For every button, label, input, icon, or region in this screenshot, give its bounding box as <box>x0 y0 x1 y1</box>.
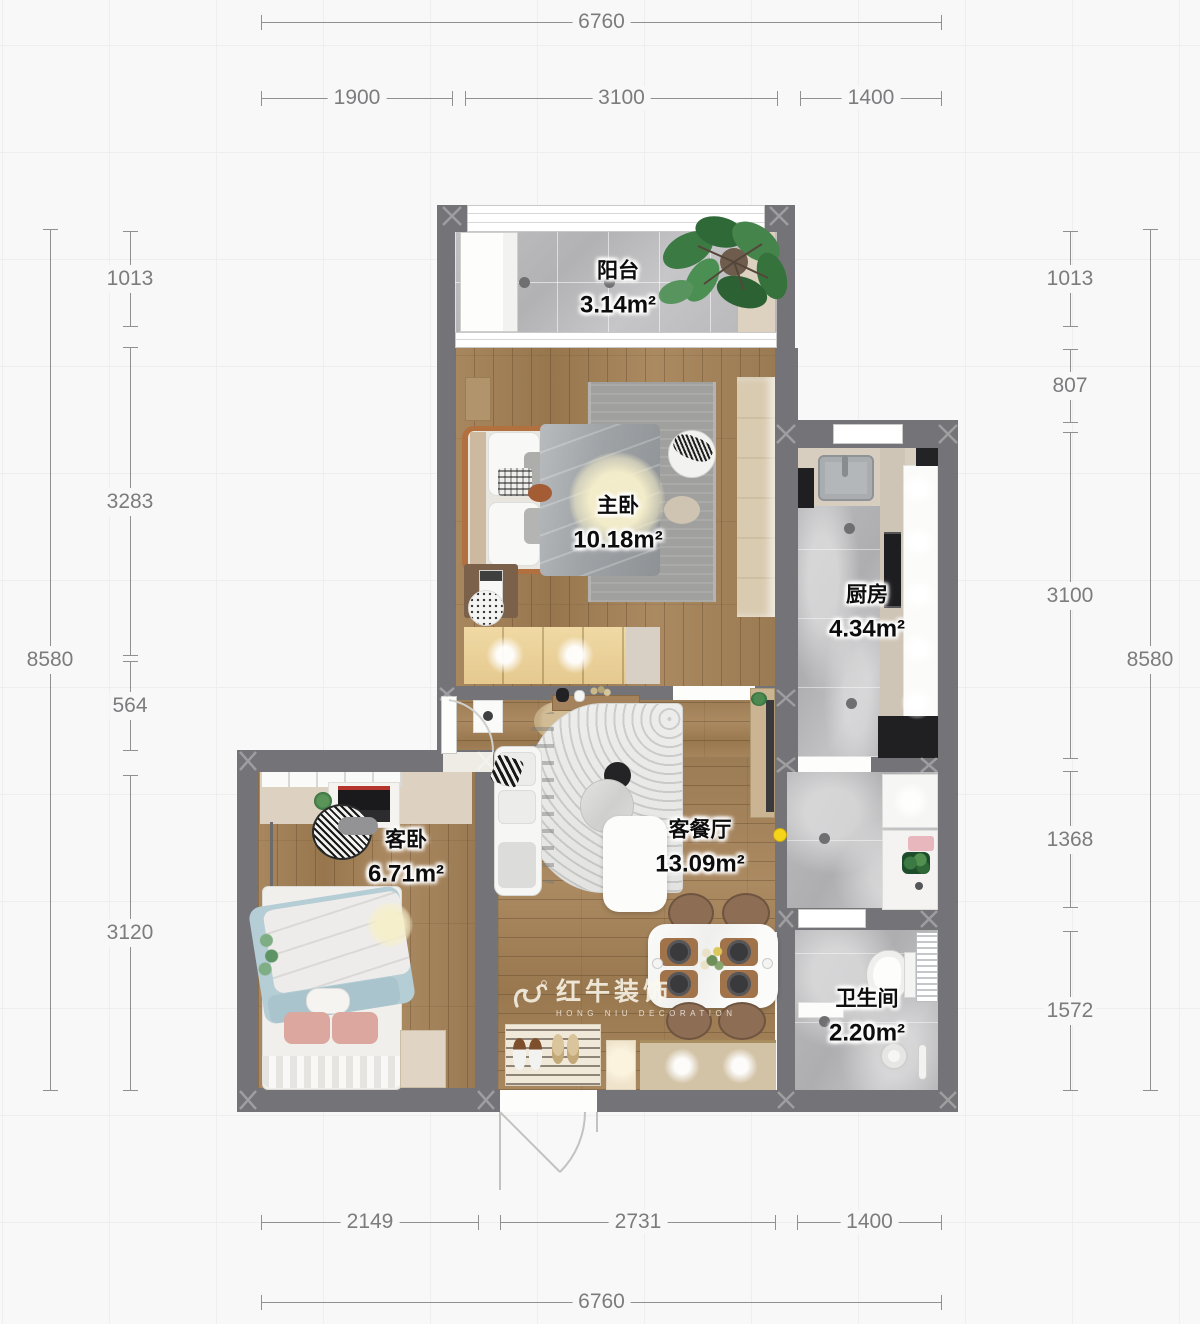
label-bathroom: 卫生间 2.20m² <box>829 983 905 1048</box>
kitchen-window <box>833 424 903 444</box>
dim-label: 1400 <box>842 86 901 110</box>
guest-pillow-pink <box>332 1012 378 1044</box>
plate <box>727 940 751 964</box>
dim-label: 1013 <box>104 265 157 293</box>
guest-pillow-pink <box>284 1012 330 1044</box>
dim-label: 3283 <box>104 488 157 516</box>
slipper <box>529 1038 542 1070</box>
east-outer-wall <box>938 420 958 1112</box>
kitchen-light <box>902 578 936 612</box>
guest-light-glow <box>367 902 413 948</box>
room-area: 10.18m² <box>573 527 662 555</box>
dim-label: 3100 <box>592 86 651 110</box>
dim-label: 1900 <box>328 86 387 110</box>
dim-label: 3120 <box>104 919 157 947</box>
dim-right-seg1: 1013 <box>1070 232 1071 326</box>
cup <box>652 958 663 969</box>
guest-footboard <box>262 1056 402 1088</box>
plate <box>667 940 691 964</box>
kitchen-appliance-top <box>916 448 938 466</box>
bathroom-wall-bottom <box>777 1090 958 1112</box>
dim-left-seg4: 3120 <box>130 776 131 1090</box>
master-dotted-rug <box>468 590 504 626</box>
balcony-wall-left <box>437 228 455 348</box>
slipper <box>567 1034 579 1064</box>
balcony-master-window <box>455 332 777 348</box>
entry-door-opening <box>500 1090 597 1112</box>
dim-label: 1013 <box>1044 265 1097 293</box>
vanity-wall-left <box>775 772 787 932</box>
dim-right-outer: 8580 <box>1150 230 1151 1090</box>
dim-label: 8580 <box>1124 646 1177 674</box>
room-area: 2.20m² <box>829 1020 905 1048</box>
dim-left-seg3: 564 <box>130 662 131 750</box>
master-plaid-cushion <box>498 468 532 496</box>
watermark: 红牛装饰 HONG NIU DECORATION <box>512 980 736 1018</box>
master-door-opening <box>673 686 755 700</box>
balcony-side-shelf <box>737 232 775 332</box>
label-balcony: 阳台 3.14m² <box>580 255 656 320</box>
balcony-railing-window <box>467 205 765 232</box>
table-flowers <box>698 944 726 974</box>
shoe-cabinet-light <box>664 1048 700 1084</box>
guest-door-opening <box>443 752 493 772</box>
room-name: 主卧 <box>573 490 662 520</box>
room-name: 客卧 <box>368 824 444 854</box>
master-corner-shelf <box>465 377 491 421</box>
vanity-light <box>892 782 930 820</box>
guest-bolster <box>306 988 350 1014</box>
slipper <box>513 1038 526 1070</box>
dim-label: 2149 <box>341 1210 400 1234</box>
room-name: 厨房 <box>829 579 905 609</box>
dim-label: 1400 <box>840 1210 899 1234</box>
room-name: 阳台 <box>580 255 656 285</box>
dim-left-seg2: 3283 <box>130 348 131 655</box>
dim-left-outer: 8580 <box>50 230 51 1090</box>
room-name: 卫生间 <box>829 983 905 1013</box>
switch-dot <box>773 828 787 842</box>
dim-bottom-seg3: 1400 <box>798 1222 941 1223</box>
master-kitchen-wall <box>775 348 798 757</box>
entry-lamp <box>606 1040 636 1090</box>
dim-right-seg2: 807 <box>1070 350 1071 422</box>
dim-top-seg3: 1400 <box>801 98 941 99</box>
guest-plant <box>256 930 282 982</box>
bathroom-window <box>798 909 866 928</box>
kitchen-fridge <box>878 716 938 758</box>
dim-label: 6760 <box>572 1290 631 1314</box>
dim-left-seg1: 1013 <box>130 232 131 326</box>
console-vase-white <box>574 690 585 702</box>
balcony-wall-right <box>777 228 795 348</box>
balcony-downlight <box>519 277 530 288</box>
watermark-subtitle: HONG NIU DECORATION <box>556 1009 736 1018</box>
kitchen-light <box>902 632 936 666</box>
kitchen-faucet <box>842 455 848 477</box>
label-living: 客餐厅 13.09m² <box>655 814 744 879</box>
balcony-cabinet <box>460 232 518 332</box>
dim-right-seg4: 1368 <box>1070 772 1071 907</box>
master-bed-headboard <box>470 432 486 568</box>
cabinet-plant <box>751 692 767 706</box>
watermark-text: 红牛装饰 HONG NIU DECORATION <box>556 980 736 1018</box>
dim-label: 1572 <box>1044 997 1097 1025</box>
cup <box>762 958 773 969</box>
bathroom-wall-left <box>777 928 795 1092</box>
room-area: 13.09m² <box>655 851 744 879</box>
sofa-cushion <box>498 790 536 824</box>
kitchen-light <box>900 686 934 720</box>
kitchen-light <box>902 472 936 506</box>
dim-top-total: 6760 <box>262 22 941 23</box>
guest-nightstand <box>400 1030 446 1088</box>
master-bed-ball-cushion <box>528 484 552 502</box>
room-area: 4.34m² <box>829 616 905 644</box>
dim-top-seg1: 1900 <box>262 98 452 99</box>
master-wall-left <box>437 348 455 700</box>
kitchen-side-panel <box>798 468 814 508</box>
console-plant <box>588 684 612 698</box>
dim-right-seg5: 1572 <box>1070 932 1071 1090</box>
kitchen-light <box>902 525 936 559</box>
tv-panel <box>766 700 774 812</box>
label-guest: 客卧 6.71m² <box>368 824 444 889</box>
dim-label: 8580 <box>24 646 77 674</box>
dim-bottom-seg1: 2149 <box>262 1222 478 1223</box>
vanity-faucet <box>915 882 923 890</box>
toilet-tank <box>904 952 916 998</box>
kitchen-door-opening <box>798 757 871 772</box>
master-bench-mat <box>626 627 660 684</box>
watermark-brand: 红牛装饰 <box>556 980 736 1005</box>
bench-light <box>556 636 594 674</box>
dim-right-seg3: 3100 <box>1070 433 1071 758</box>
vanity-downlight <box>819 833 830 844</box>
shower-wand <box>918 1044 927 1080</box>
room-area: 6.71m² <box>368 861 444 889</box>
dim-bottom-seg2: 2731 <box>501 1222 775 1223</box>
dim-top-seg2: 3100 <box>466 98 777 99</box>
dim-label: 3100 <box>1044 582 1097 610</box>
room-name: 客餐厅 <box>655 814 744 844</box>
floorplan-canvas: 6760 1900 3100 1400 2149 2731 1400 6760 … <box>0 0 1200 1324</box>
hall-door-leaf <box>441 696 457 754</box>
sofa-blanket <box>498 842 536 888</box>
kitchen-downlight <box>844 523 855 534</box>
vanity-towel <box>908 836 934 851</box>
label-kitchen: 厨房 4.34m² <box>829 579 905 644</box>
dim-label: 807 <box>1049 372 1090 400</box>
dim-label: 2731 <box>609 1210 668 1234</box>
master-pouf <box>664 496 700 524</box>
dim-label: 564 <box>109 692 150 720</box>
kitchen-downlight <box>846 698 857 709</box>
bench-light <box>486 636 524 674</box>
vanity-plant <box>902 852 930 874</box>
label-master: 主卧 10.18m² <box>573 490 662 555</box>
slipper <box>552 1034 564 1064</box>
dim-label: 6760 <box>572 10 631 34</box>
shoe-cabinet-light <box>722 1048 758 1084</box>
master-wardrobe <box>737 377 775 617</box>
console-vase <box>556 688 569 702</box>
dim-label: 1368 <box>1044 826 1097 854</box>
dim-bottom-total: 6760 <box>262 1302 941 1303</box>
brand-bull-icon <box>512 980 548 1012</box>
entry-door <box>500 1112 597 1190</box>
hall-bowl <box>483 711 493 721</box>
room-area: 3.14m² <box>580 292 656 320</box>
towel-radiator <box>916 932 938 1002</box>
